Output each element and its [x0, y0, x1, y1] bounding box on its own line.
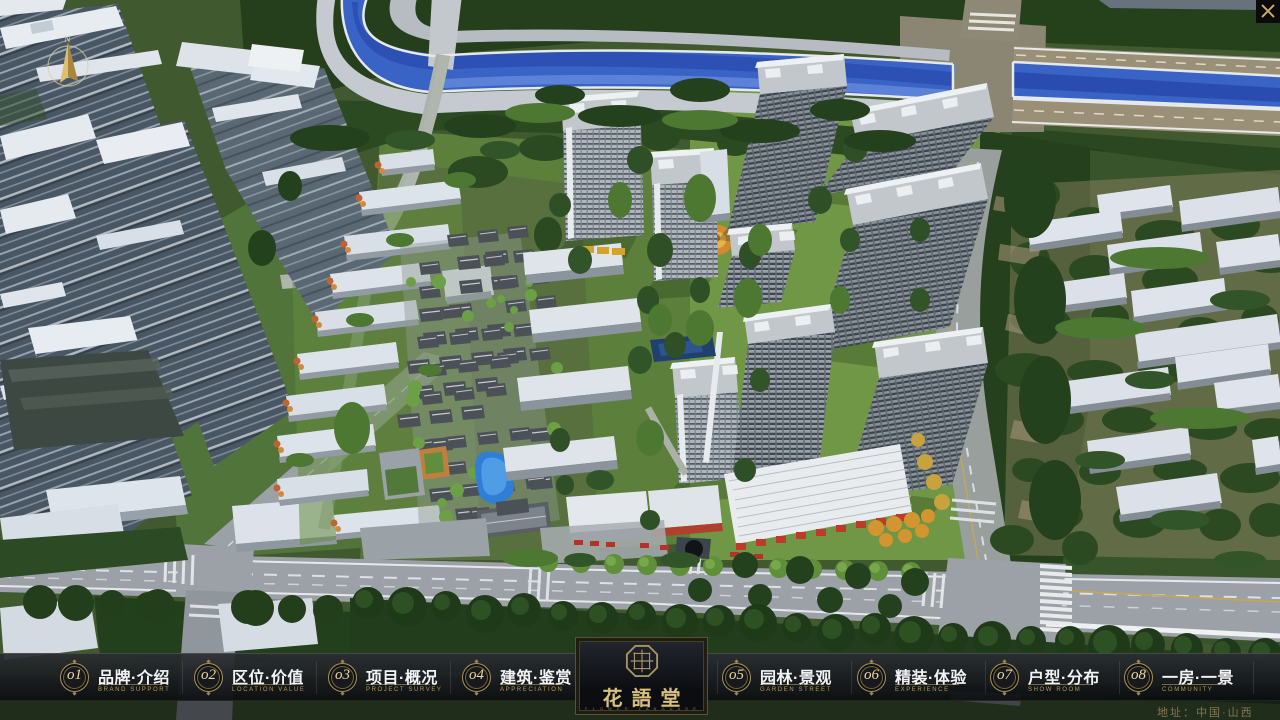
svg-text:N: N [64, 34, 71, 44]
